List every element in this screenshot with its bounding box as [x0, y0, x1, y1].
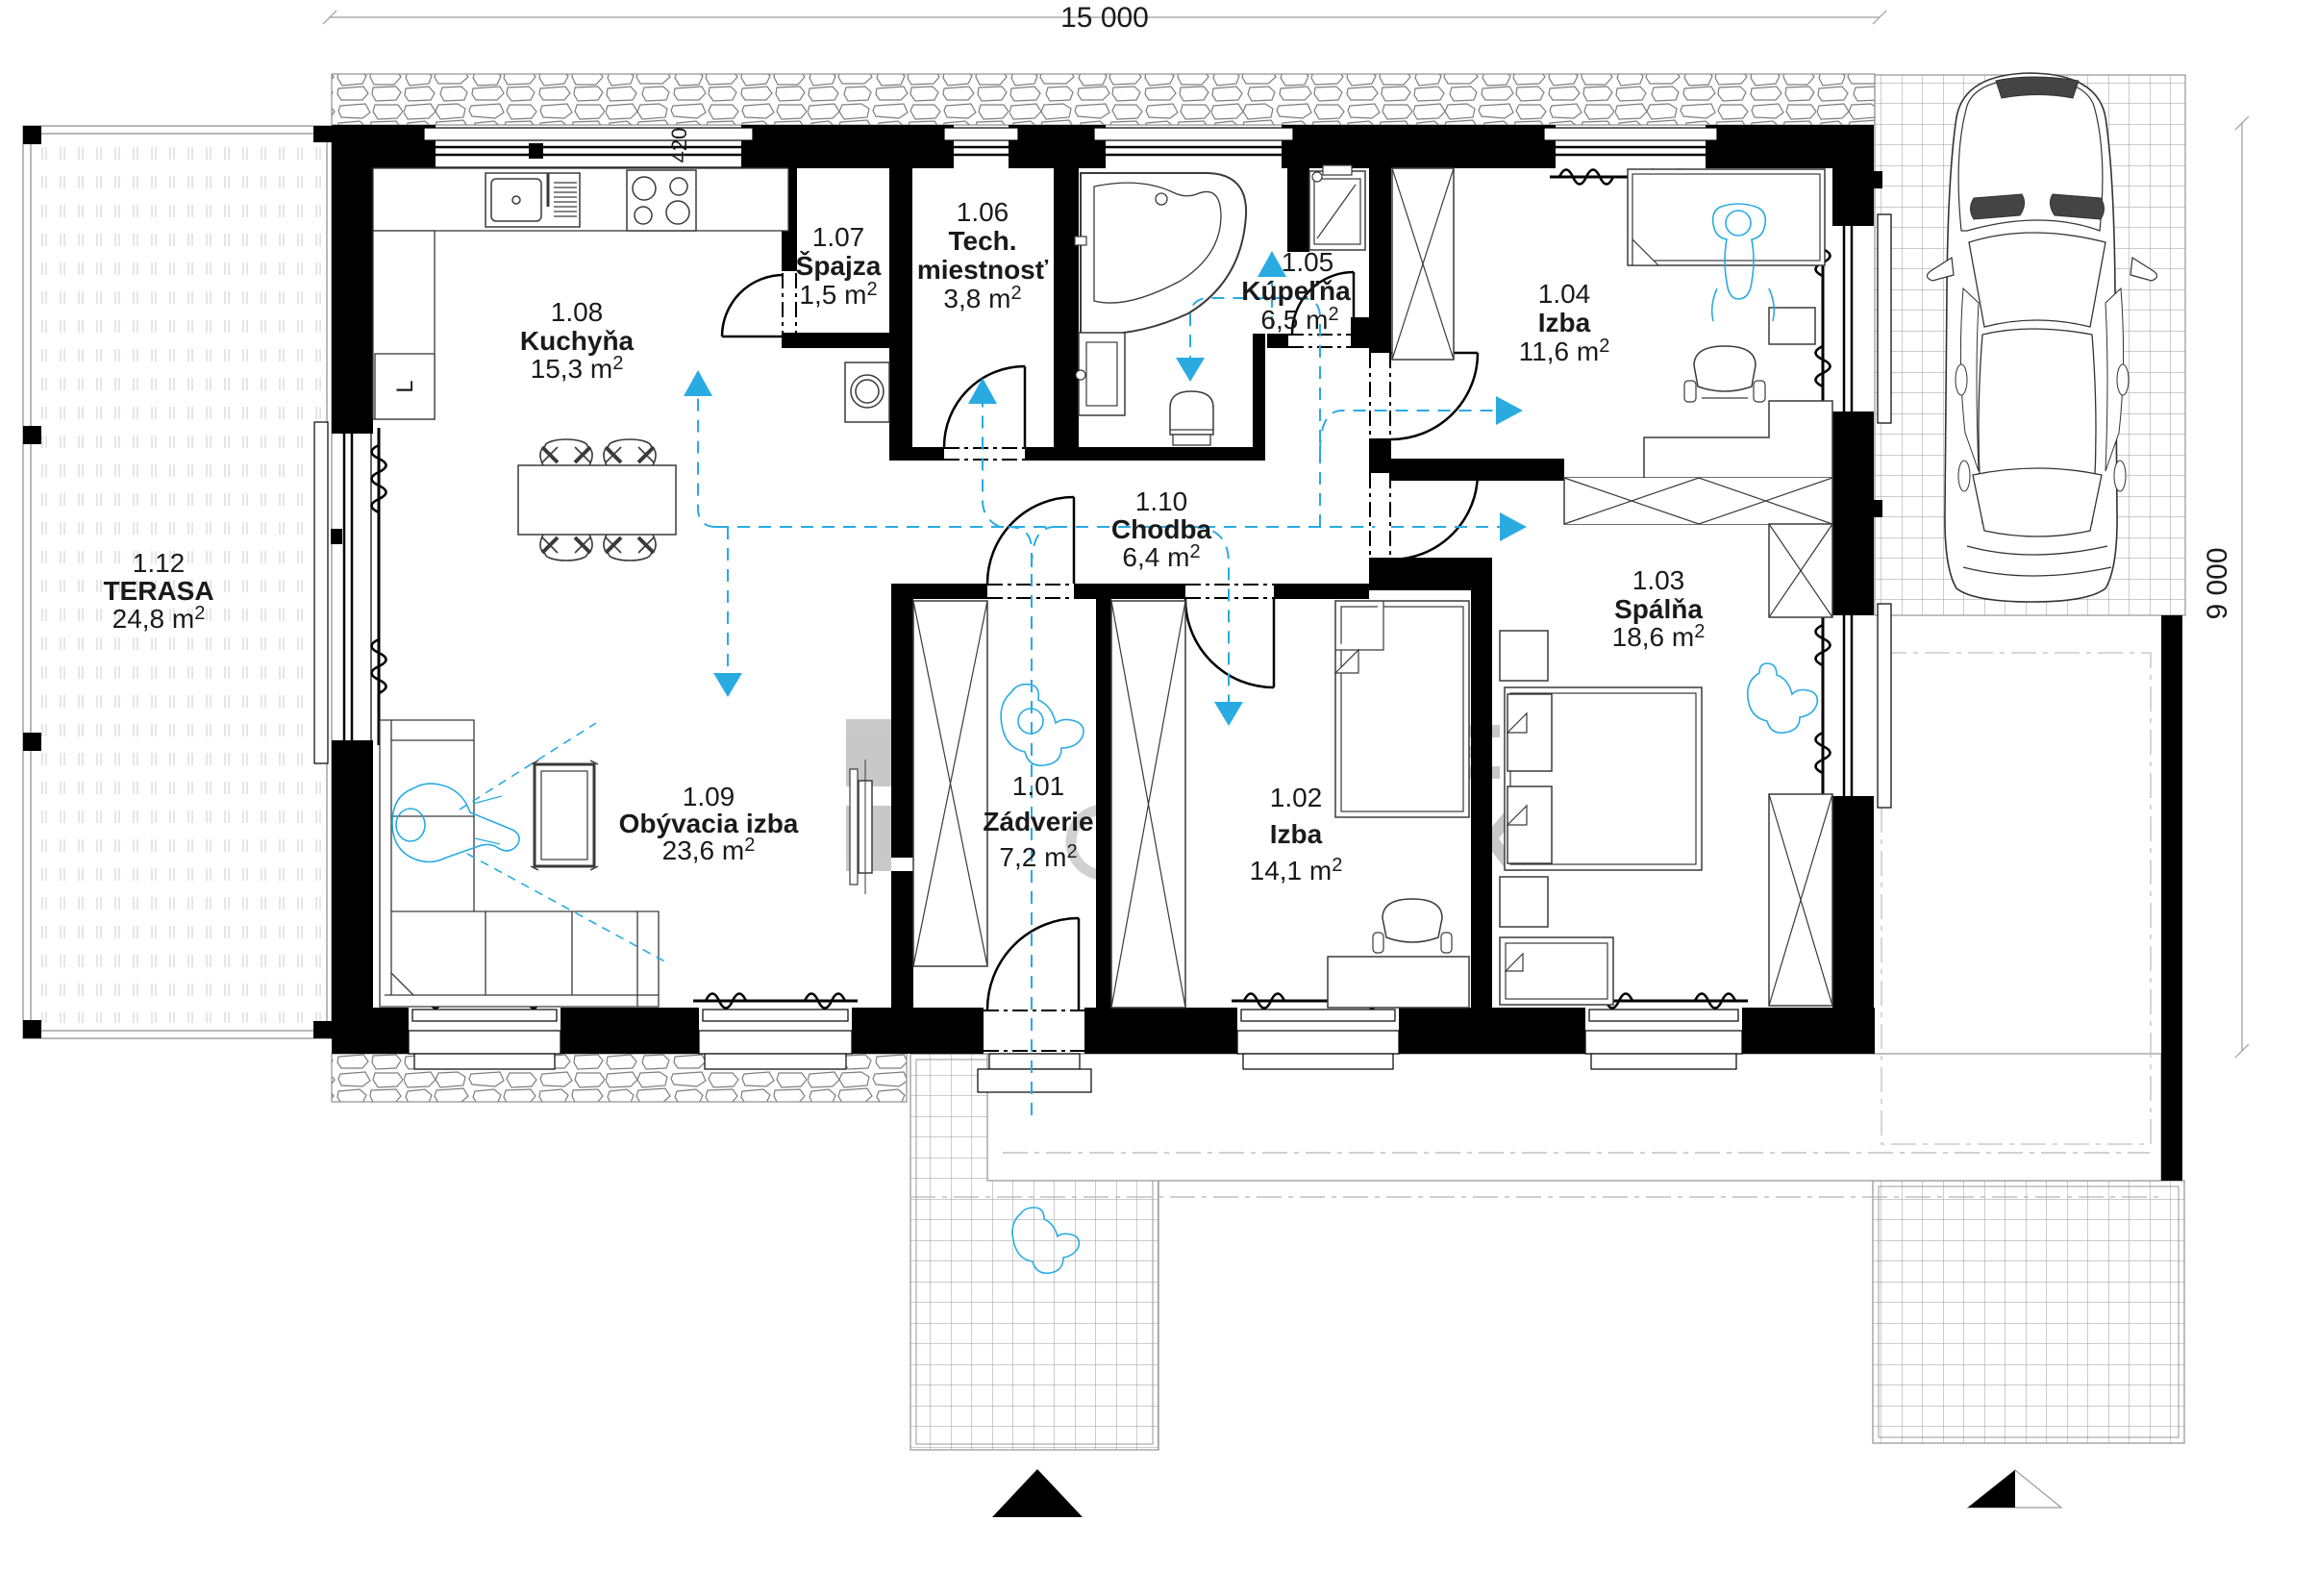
svg-text:6,5 m2: 6,5 m2 — [1260, 304, 1338, 335]
svg-text:Kuchyňa: Kuchyňa — [520, 326, 635, 356]
svg-text:1.09: 1.09 — [683, 782, 735, 811]
svg-text:15 000: 15 000 — [1060, 2, 1149, 34]
svg-text:3,8 m2: 3,8 m2 — [943, 283, 1021, 313]
svg-text:9 000: 9 000 — [2202, 547, 2233, 619]
svg-text:6,4 m2: 6,4 m2 — [1122, 541, 1200, 572]
svg-text:Obývacia izba: Obývacia izba — [619, 809, 799, 838]
svg-text:18,6 m2: 18,6 m2 — [1612, 621, 1706, 652]
svg-text:Spálňa: Spálňa — [1614, 594, 1703, 624]
svg-text:1.10: 1.10 — [1135, 486, 1188, 516]
svg-text:Zádverie: Zádverie — [983, 807, 1093, 836]
svg-text:1.06: 1.06 — [957, 197, 1009, 227]
svg-text:L: L — [392, 380, 418, 392]
svg-text:1.07: 1.07 — [812, 222, 865, 252]
svg-text:7,2 m2: 7,2 m2 — [999, 841, 1077, 872]
svg-text:1.02: 1.02 — [1270, 783, 1323, 812]
svg-text:1.05: 1.05 — [1282, 247, 1334, 277]
svg-text:TERASA: TERASA — [103, 576, 213, 606]
svg-text:1.03: 1.03 — [1632, 565, 1685, 595]
svg-text:1.12: 1.12 — [133, 548, 186, 578]
svg-text:420: 420 — [667, 128, 691, 163]
svg-text:1.04: 1.04 — [1538, 279, 1591, 309]
svg-text:Izba: Izba — [1538, 308, 1591, 337]
svg-text:Izba: Izba — [1270, 819, 1323, 849]
svg-text:Chodba: Chodba — [1111, 514, 1212, 544]
svg-text:14,1 m2: 14,1 m2 — [1250, 855, 1343, 885]
svg-text:1.08: 1.08 — [551, 297, 604, 327]
svg-text:23,6 m2: 23,6 m2 — [662, 835, 756, 865]
svg-text:Tech.: Tech. — [948, 226, 1016, 256]
svg-text:Špajza: Špajza — [796, 250, 882, 281]
svg-text:1.01: 1.01 — [1012, 771, 1065, 801]
svg-text:Kúpeľňa: Kúpeľňa — [1241, 276, 1351, 306]
svg-text:miestnosť: miestnosť — [917, 255, 1049, 285]
svg-text:11,6 m2: 11,6 m2 — [1519, 336, 1610, 366]
svg-text:15,3 m2: 15,3 m2 — [531, 353, 624, 384]
svg-text:1,5 m2: 1,5 m2 — [799, 279, 877, 310]
svg-text:24,8 m2: 24,8 m2 — [112, 603, 206, 634]
